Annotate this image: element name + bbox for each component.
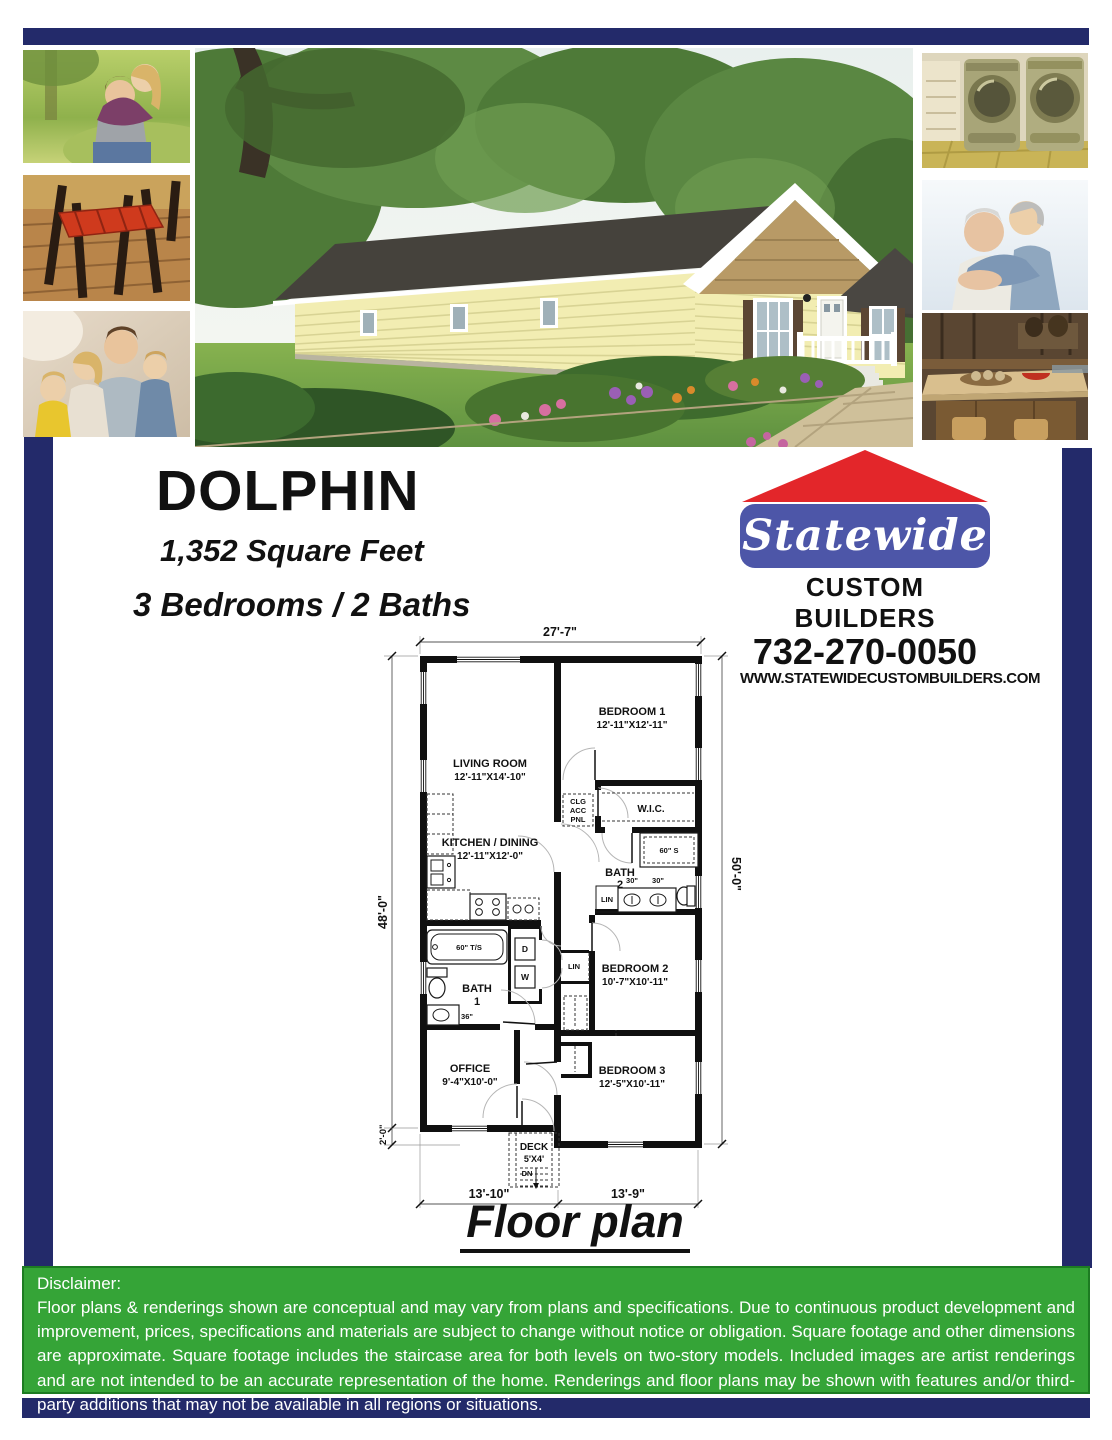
dim-left: 48'-0": [376, 895, 390, 929]
photo-wood-chairs-red-seats: [23, 175, 190, 301]
kitchen-label: KITCHEN / DINING: [442, 837, 539, 849]
photo-kitchen-island: [922, 313, 1088, 440]
dryer-label: D: [522, 944, 528, 954]
photo-senior-couple: [922, 180, 1088, 310]
lin-hall-label: LIN: [568, 962, 580, 971]
vanity36-label: 36": [461, 1012, 473, 1021]
acc-label: ACC: [570, 806, 587, 815]
phone-number: 732-270-0050: [740, 634, 990, 670]
washer: [964, 59, 1020, 151]
window: [695, 876, 702, 908]
vanity30b-label: 30": [652, 876, 664, 885]
deck-label: DECK: [520, 1142, 549, 1153]
clg-label: CLG: [570, 797, 586, 806]
photo-washer-dryer-laundry: [922, 53, 1088, 168]
window: [695, 960, 702, 992]
floor-plan: 27'-7" 48'-0" 50'-0" 2'-0" 13'-10" 13'-9…: [370, 612, 766, 1212]
bath1-fixtures: 60" T/S 36": [427, 930, 507, 1025]
logo-subtitle: CUSTOM BUILDERS: [740, 572, 990, 634]
lin-bath2-label: LIN: [601, 895, 613, 904]
disclaimer-heading: Disclaimer:: [37, 1272, 1075, 1296]
page-title: DOLPHIN: [156, 458, 420, 524]
brand-name: Statewide: [742, 511, 988, 561]
bedroom3-size: 12'-5"X10'-11": [599, 1079, 665, 1090]
left-border-stripe: [24, 437, 53, 1268]
logo-badge: Statewide: [740, 504, 990, 568]
wic-label: W.I.C.: [637, 804, 664, 815]
photo-young-couple-in-park: [23, 50, 190, 163]
floor-plan-caption: Floor plan: [440, 1196, 710, 1248]
disclaimer-body: Floor plans & renderings shown are conce…: [37, 1296, 1075, 1417]
window: [695, 1062, 702, 1094]
photo-couple-art: [23, 50, 190, 163]
flyer-page: DOLPHIN 1,352 Square Feet 3 Bedrooms / 2…: [0, 0, 1112, 1440]
living-room-label: LIVING ROOM: [453, 758, 527, 770]
porch-light: [803, 294, 811, 302]
front-window-1: [743, 298, 803, 364]
window: [457, 656, 520, 663]
photo-chairs-art: [23, 175, 190, 301]
logo-roof-icon: [742, 450, 988, 502]
window: [452, 1125, 487, 1132]
top-border-bar: [23, 28, 1089, 45]
window: [420, 760, 427, 792]
photo-laundry-art: [922, 53, 1088, 168]
disclaimer-band: Disclaimer: Floor plans & renderings sho…: [22, 1266, 1090, 1394]
deck-size: 5'X4': [524, 1154, 544, 1164]
window: [695, 748, 702, 780]
floor-plan-drawing: 27'-7" 48'-0" 50'-0" 2'-0" 13'-10" 13'-9…: [370, 612, 766, 1212]
bedroom1-label: BEDROOM 1: [599, 706, 666, 718]
dim-top: 27'-7": [543, 625, 577, 639]
dryer: [1026, 57, 1084, 151]
window: [695, 664, 702, 696]
bath1-label: BATH: [462, 983, 492, 995]
house-rendering: [195, 48, 913, 447]
floor-plan-caption-text: Floor plan: [460, 1196, 690, 1253]
window: [420, 672, 427, 704]
right-border-stripe: [1062, 448, 1092, 1268]
toilet: [429, 978, 445, 998]
kitchen-size: 12'-11"X12'-0": [457, 851, 523, 862]
vanity: [427, 1005, 459, 1025]
bedroom3-label: BEDROOM 3: [599, 1065, 666, 1077]
square-feet-text: 1,352 Square Feet: [160, 533, 424, 569]
photo-family-of-four: [23, 311, 190, 437]
window: [420, 962, 427, 994]
website-url: WWW.STATEWIDECUSTOMBUILDERS.COM: [740, 670, 990, 687]
bedroom2-size: 10'-7"X10'-11": [602, 977, 668, 988]
office-size: 9'-4"X10'-0": [442, 1077, 498, 1088]
house-rendering-art: [195, 48, 913, 447]
washer-label: W: [521, 972, 530, 982]
bedroom1-size: 12'-11"X12'-11": [597, 720, 668, 731]
photo-kitchen-art: [922, 313, 1088, 440]
bedroom2-label: BEDROOM 2: [602, 963, 669, 975]
tub-label: 60" T/S: [456, 943, 482, 952]
photo-family-art: [23, 311, 190, 437]
pnl-label: PNL: [571, 815, 586, 824]
builder-logo: Statewide CUSTOM BUILDERS 732-270-0050 W…: [740, 450, 990, 687]
dim-right: 50'-0": [729, 857, 743, 891]
toilet-tank: [427, 968, 447, 977]
bath2-number: 2: [617, 879, 623, 891]
bath1-number: 1: [474, 996, 480, 1008]
living-room-size: 12'-11"X14'-10": [454, 772, 526, 783]
dim-offset: 2'-0": [378, 1125, 389, 1146]
deck-dn-label: DN: [522, 1169, 533, 1178]
window: [608, 1141, 643, 1148]
double-vanity: [618, 888, 676, 912]
shower-label: 60" S: [660, 846, 679, 855]
office-label: OFFICE: [450, 1063, 490, 1075]
bath2-label: BATH: [605, 867, 635, 879]
photo-seniors-art: [922, 180, 1088, 310]
range: [470, 894, 506, 920]
